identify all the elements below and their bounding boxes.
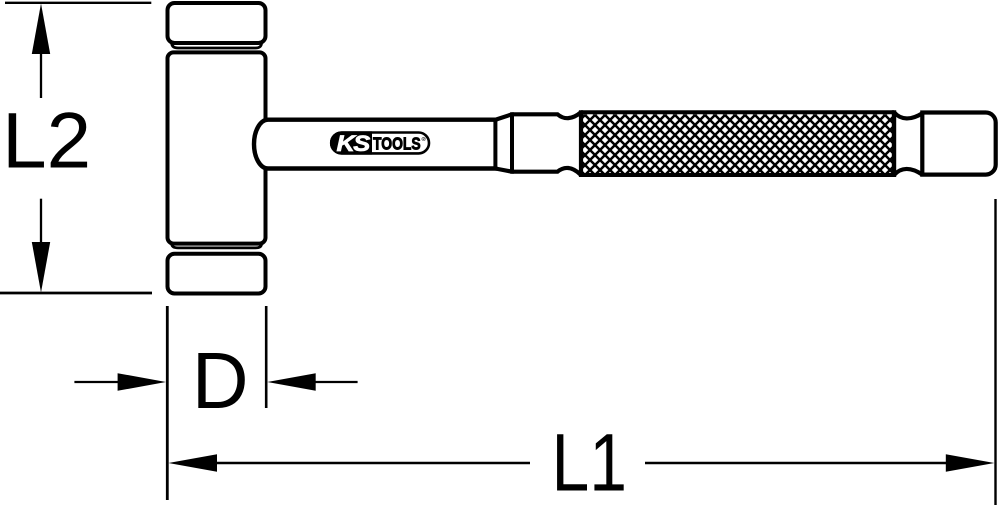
svg-text:L2: L2 [2, 97, 91, 185]
svg-text:KS: KS [337, 131, 371, 156]
svg-text:TOOLS: TOOLS [373, 134, 421, 154]
svg-text:D: D [192, 336, 249, 425]
svg-text:L1: L1 [552, 418, 628, 509]
svg-text:®: ® [422, 136, 427, 143]
